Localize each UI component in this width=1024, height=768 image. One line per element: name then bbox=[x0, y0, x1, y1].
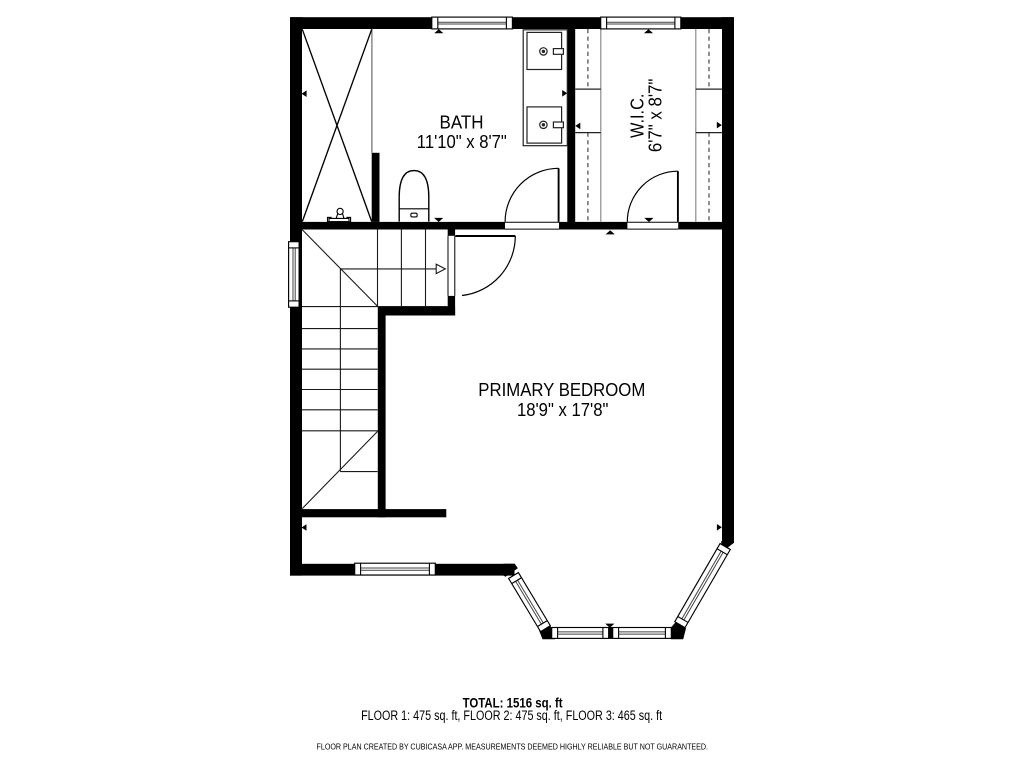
svg-text:BATH: BATH bbox=[440, 112, 484, 133]
svg-text:18'9" x 17'8": 18'9" x 17'8" bbox=[517, 399, 609, 420]
svg-text:PRIMARY BEDROOM: PRIMARY BEDROOM bbox=[478, 379, 645, 400]
svg-text:FLOOR 1: 475 sq. ft, FLOOR 2:: FLOOR 1: 475 sq. ft, FLOOR 2: 475 sq. ft… bbox=[361, 708, 662, 723]
svg-text:FLOOR PLAN CREATED BY CUBICASA: FLOOR PLAN CREATED BY CUBICASA APP. MEAS… bbox=[317, 741, 709, 751]
svg-text:6'7" x 8'7": 6'7" x 8'7" bbox=[645, 79, 666, 152]
svg-text:11'10" x 8'7": 11'10" x 8'7" bbox=[417, 131, 507, 152]
